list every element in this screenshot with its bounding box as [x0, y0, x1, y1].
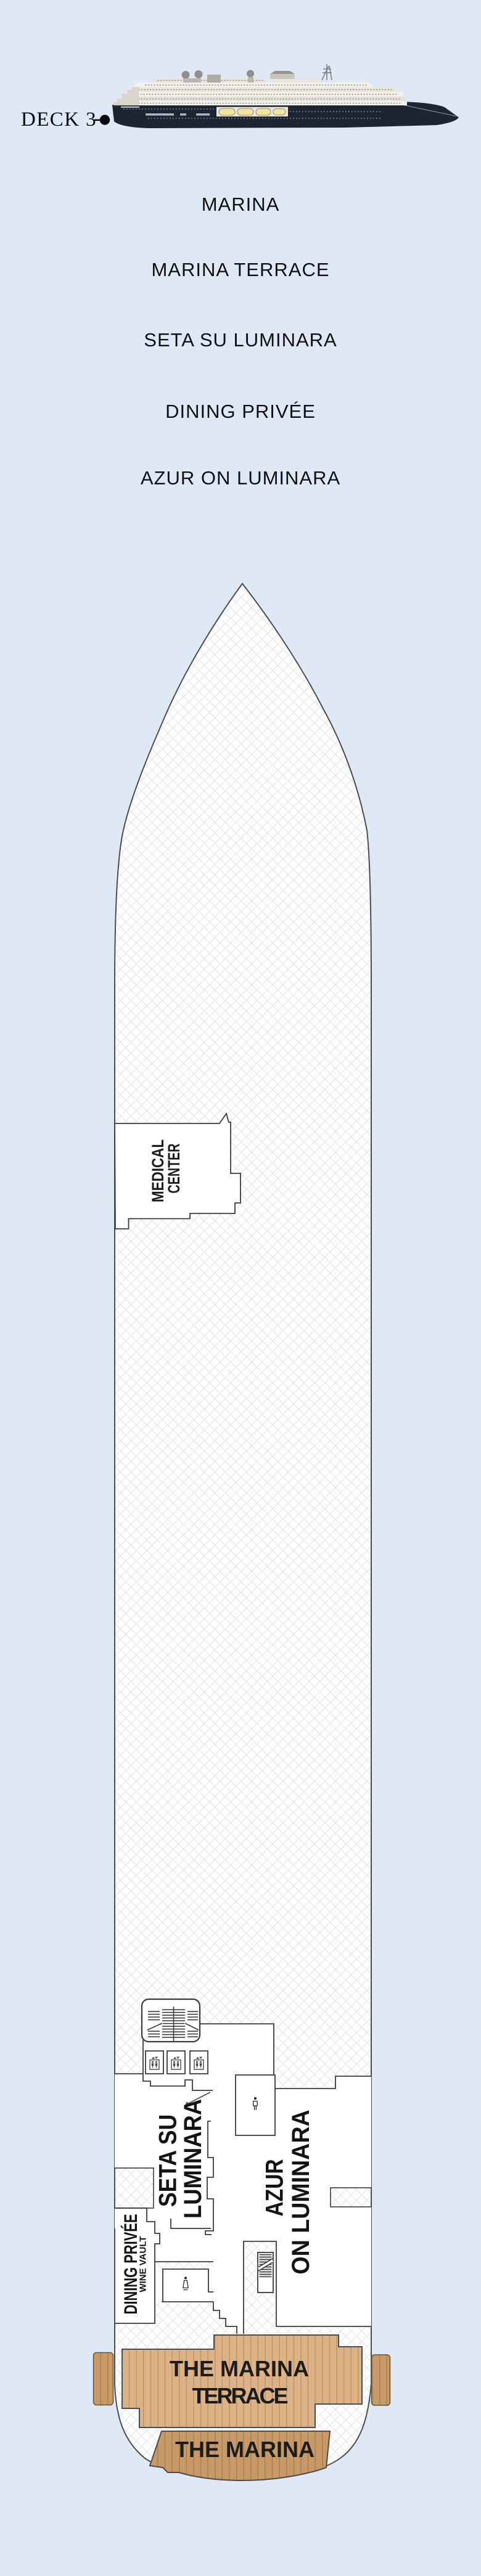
- svg-text:LUMINARA: LUMINARA: [179, 2099, 207, 2219]
- svg-text:SETA SU: SETA SU: [155, 2114, 182, 2207]
- svg-text:THE MARINA: THE MARINA: [175, 2437, 314, 2462]
- svg-text:WINE VAULT: WINE VAULT: [138, 2236, 149, 2292]
- svg-text:THE MARINA: THE MARINA: [170, 2356, 309, 2381]
- svg-text:CENTER: CENTER: [165, 1144, 184, 1194]
- svg-text:MEDICAL: MEDICAL: [149, 1139, 167, 1202]
- svg-text:AZUR: AZUR: [261, 2159, 288, 2216]
- svg-text:TERRACE: TERRACE: [192, 2383, 287, 2408]
- svg-text:ON LUMINARA: ON LUMINARA: [287, 2109, 314, 2274]
